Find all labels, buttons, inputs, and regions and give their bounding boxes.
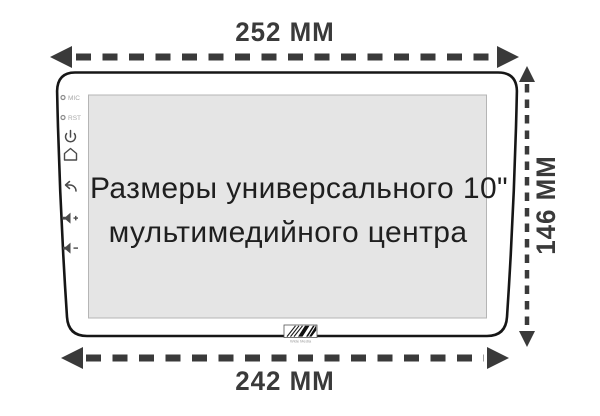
logo-text: Wide Media [290, 339, 312, 344]
arrowhead-right-icon [497, 46, 519, 68]
dimension-label-bottom-width: 242 ММ [184, 366, 386, 397]
arrowhead-up-icon [519, 66, 535, 82]
arrowhead-left-icon [61, 347, 83, 369]
mic-label: MIC [68, 95, 80, 102]
reset-label: RST [68, 115, 81, 122]
screen-caption-line2: мультимедийного центра [90, 211, 486, 255]
top-dimension-arrow [50, 46, 519, 68]
dimension-label-right-height: 146 ММ [531, 147, 559, 262]
screen-caption-line1: Размеры универсального 10" [90, 167, 486, 211]
arrowhead-left-icon [50, 46, 72, 68]
screen-caption: Размеры универсального 10" мультимедийно… [90, 167, 486, 254]
arrowhead-down-icon [519, 331, 535, 347]
brand-logo: Wide Media [284, 325, 317, 344]
arrowhead-right-icon [487, 347, 509, 369]
dimension-label-top-width: 252 ММ [184, 17, 386, 48]
dimension-diagram: MIC RST [0, 0, 600, 416]
